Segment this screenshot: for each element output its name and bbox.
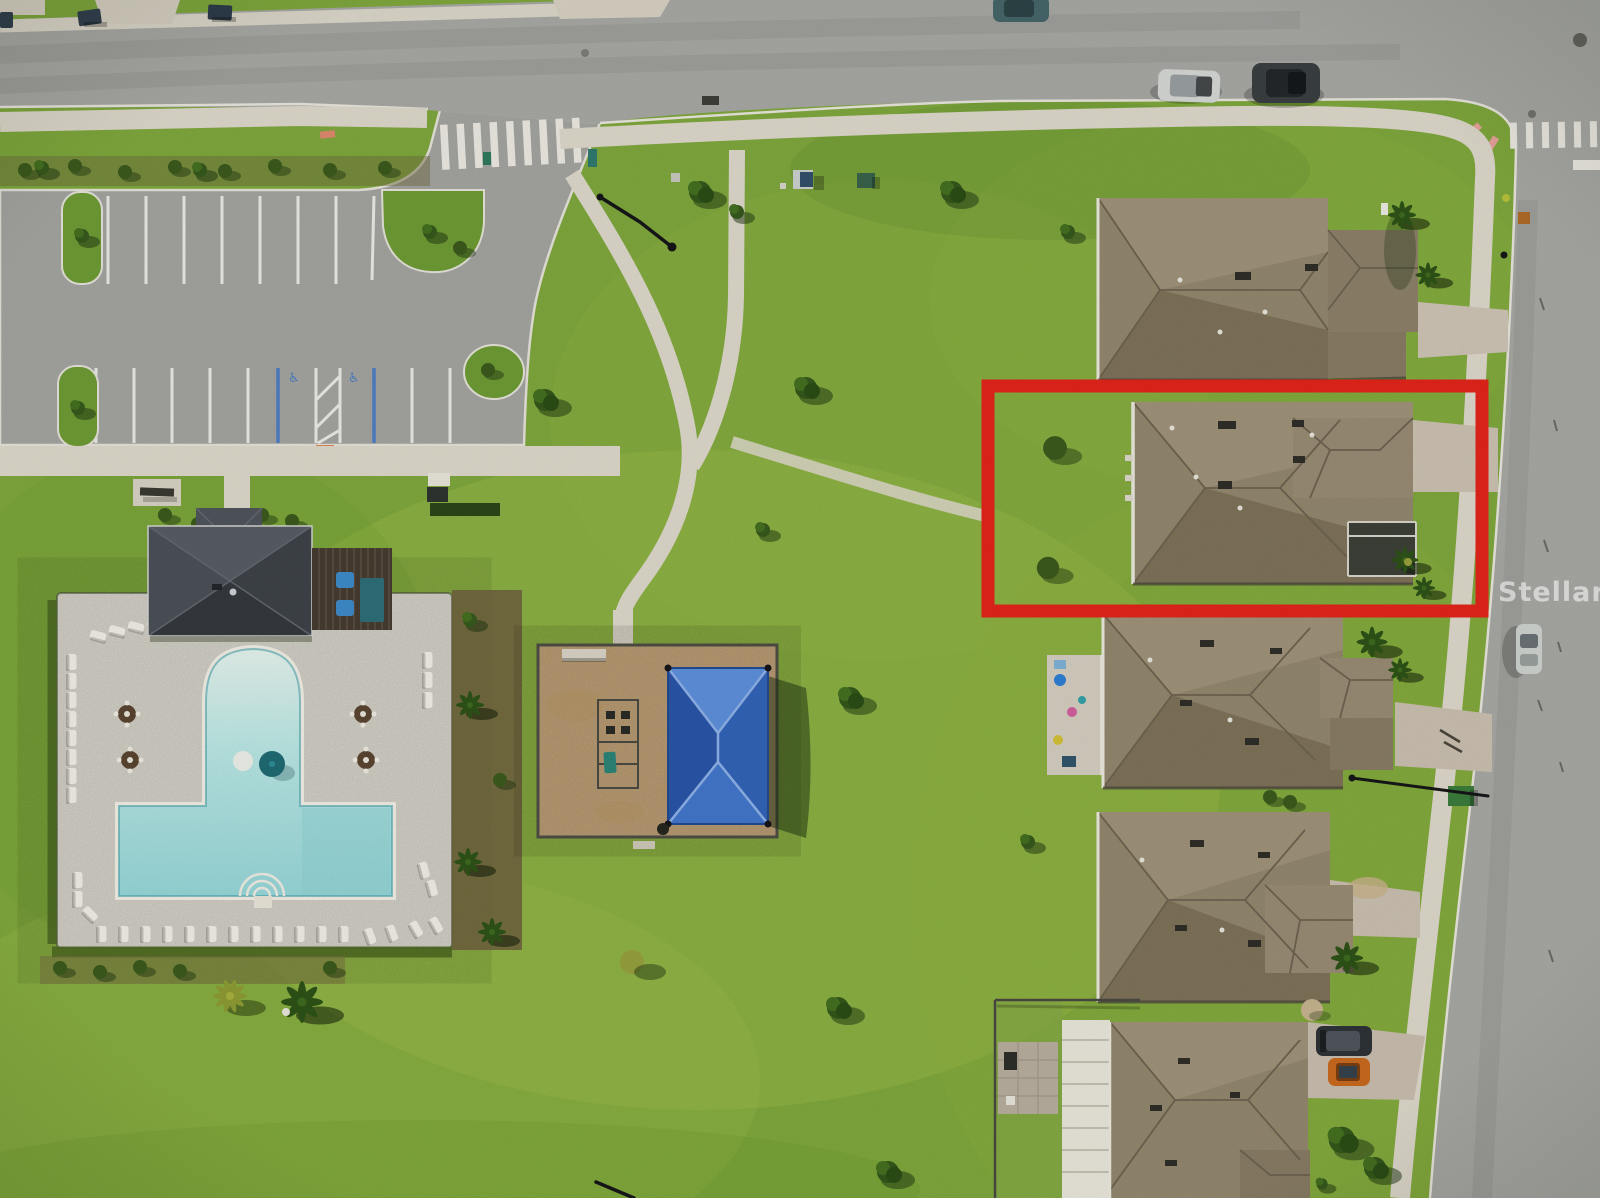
aerial-photo: ♿ ♿ [0,0,1600,1198]
aerial-scene: ♿ ♿ [0,0,1600,1198]
watermark: StellarMLS [1498,577,1600,608]
vignette [0,0,1600,1198]
